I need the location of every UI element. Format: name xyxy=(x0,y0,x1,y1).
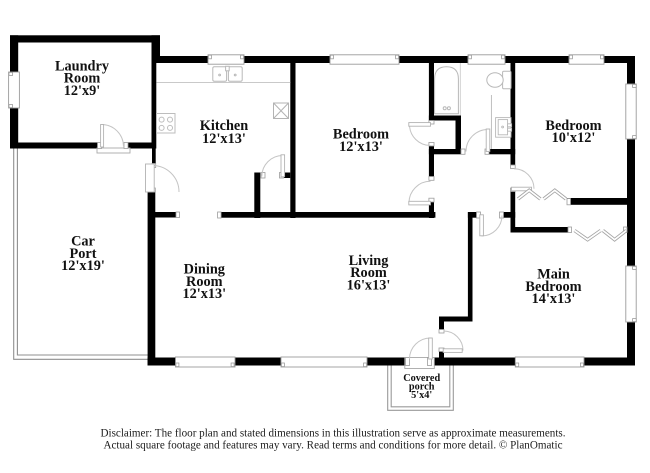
svg-text:10'x12': 10'x12' xyxy=(552,130,596,146)
svg-text:12'x13': 12'x13' xyxy=(339,139,383,155)
svg-text:12'x9': 12'x9' xyxy=(64,83,101,99)
svg-text:14'x13': 14'x13' xyxy=(532,291,576,307)
svg-text:Disclaimer: The floor plan and: Disclaimer: The floor plan and stated di… xyxy=(100,428,565,440)
svg-text:16'x13': 16'x13' xyxy=(347,277,391,293)
svg-text:12'x19': 12'x19' xyxy=(61,258,105,274)
svg-text:5'x4': 5'x4' xyxy=(411,390,432,401)
svg-text:12'x13': 12'x13' xyxy=(182,286,226,302)
svg-text:Actual square footage and feat: Actual square footage and features may v… xyxy=(103,440,562,452)
svg-text:12'x13': 12'x13' xyxy=(202,131,246,147)
